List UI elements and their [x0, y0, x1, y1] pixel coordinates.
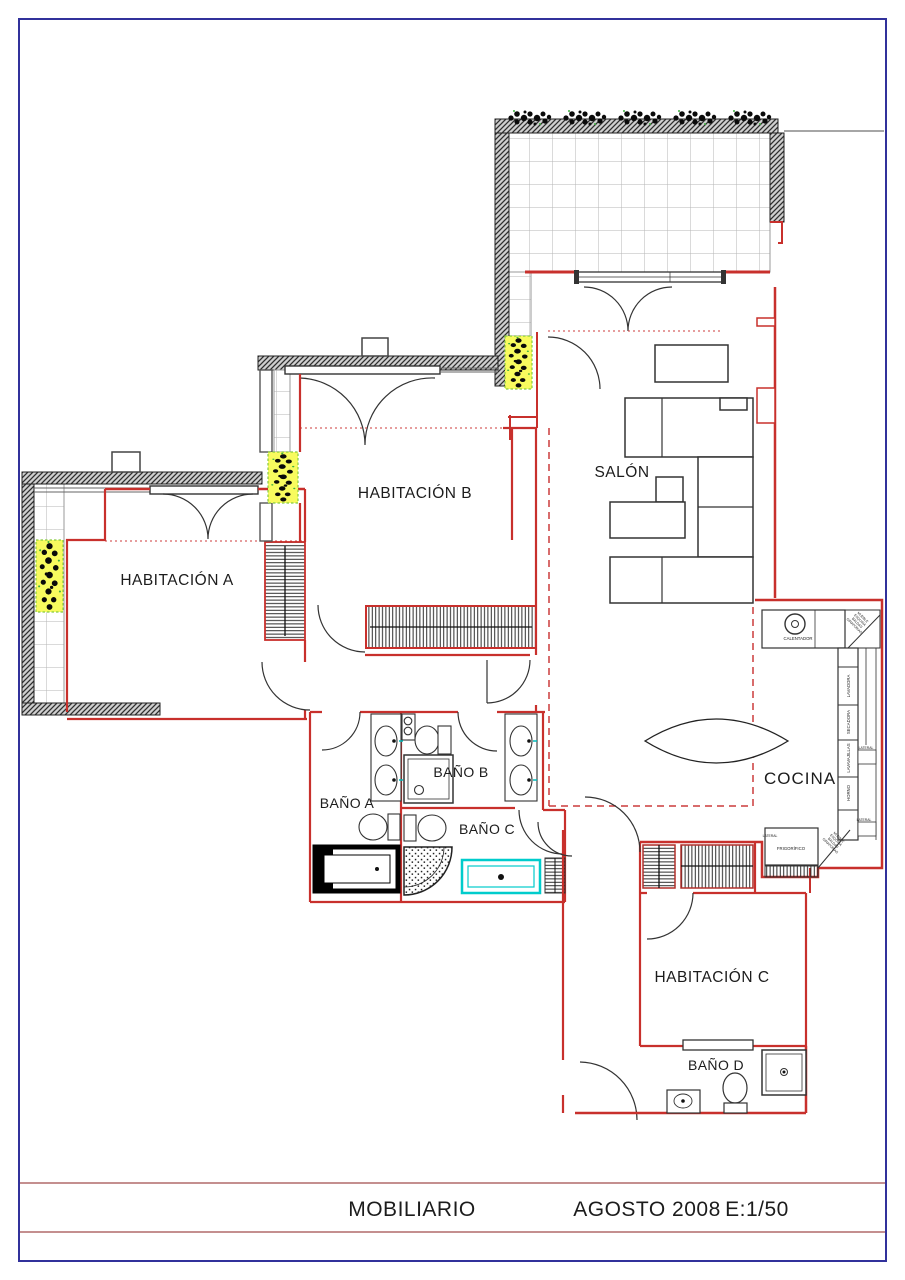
drawing-title: MOBILIARIO: [348, 1198, 476, 1221]
drawing-sheet: MOBILIARIO AGOSTO 2008 E:1/50: [0, 0, 905, 1280]
plant-box-hab-b: [268, 452, 298, 503]
toilet-bano-b: [415, 726, 439, 754]
toilet-bano-d: [723, 1073, 747, 1103]
habitacion-a-label: HABITACIÓN A: [120, 572, 234, 589]
cocina-table: [645, 719, 788, 763]
bano-d: BAÑO D: [575, 1046, 806, 1113]
lateral-label-2: LATERAL: [857, 818, 872, 822]
lavadora-label: LAVADORA: [846, 674, 851, 697]
lavavajillas-label: LAVAVAJILLAS: [846, 743, 851, 772]
bathrooms: BAÑO A BAÑO B BAÑO C: [310, 712, 565, 902]
title-block: MOBILIARIO AGOSTO 2008 E:1/50: [20, 1183, 885, 1232]
corridor: [538, 797, 640, 1120]
plant-box-hab-a: [36, 540, 63, 612]
drawing-date: AGOSTO 2008: [573, 1198, 721, 1221]
horno-label: HORNO: [846, 784, 851, 801]
habitacion-b: HABITACIÓN B: [258, 338, 536, 712]
salon-armchair: [656, 477, 683, 502]
salon-label: SALÓN: [594, 464, 649, 481]
habitacion-a: HABITACIÓN A: [22, 452, 310, 719]
lateral-label-1: LATERAL: [859, 746, 874, 750]
drawing-scale: E:1/50: [725, 1198, 789, 1221]
bano-b-label: BAÑO B: [433, 764, 488, 780]
salon-desk: [610, 502, 685, 538]
corner-cabinet-note-top: MUEBLE ESQUINA BALDAS GIRATORIAS: [846, 609, 872, 635]
lateral-label-3: LATERAL: [763, 834, 778, 838]
cocina-label: COCINA: [764, 769, 836, 788]
salon-table: [655, 345, 728, 382]
floor-plan-svg: MOBILIARIO AGOSTO 2008 E:1/50: [0, 0, 905, 1280]
bano-a-label: BAÑO A: [320, 795, 375, 811]
bano-d-label: BAÑO D: [688, 1057, 744, 1073]
frigorifico-label: FRIGORÍFICO: [777, 846, 806, 851]
secadora-label: SECADORA: [846, 710, 851, 734]
plant-box-terrace: [505, 336, 532, 389]
shower-bano-c: [404, 847, 452, 895]
bano-c-label: BAÑO C: [459, 821, 515, 837]
habitacion-c-label: HABITACIÓN C: [654, 969, 769, 986]
calentador-label: CALENTADOR: [783, 636, 812, 641]
sofa-bottom: [610, 557, 753, 603]
habitacion-b-label: HABITACIÓN B: [358, 485, 472, 502]
toilet-bano-c: [418, 815, 446, 841]
toilet-bano-a: [359, 814, 387, 840]
